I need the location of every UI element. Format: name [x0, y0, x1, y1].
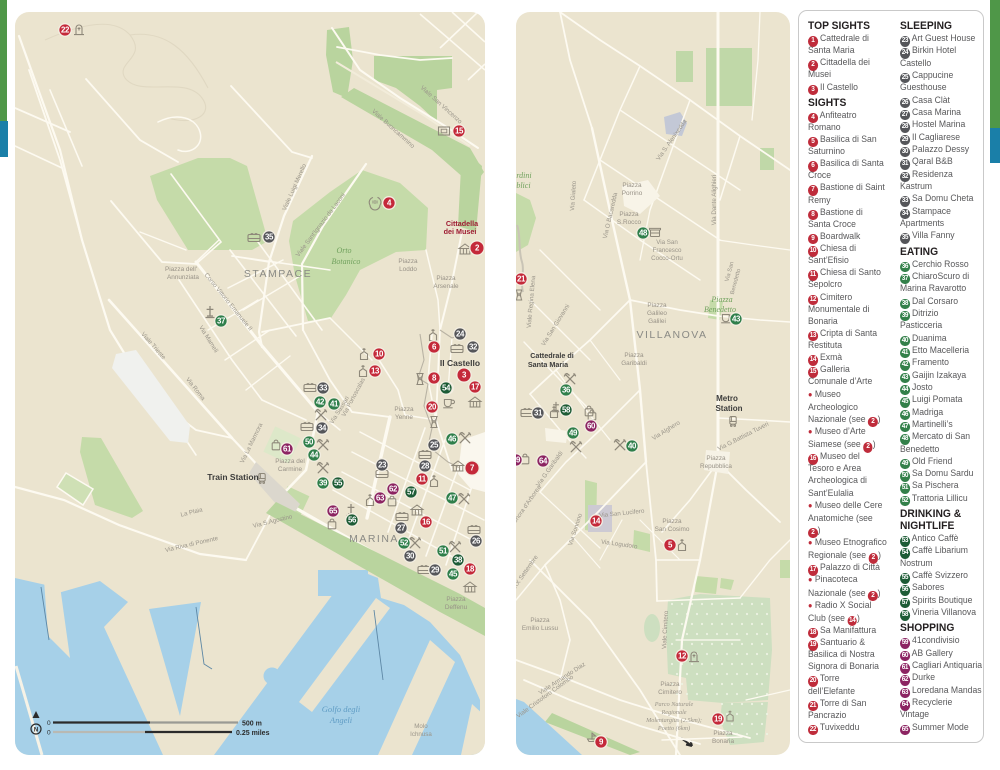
svg-text:San Cosimo: San Cosimo: [655, 526, 690, 533]
svg-text:Bonaria: Bonaria: [712, 738, 734, 745]
svg-text:40: 40: [628, 442, 637, 451]
svg-text:Regionale: Regionale: [660, 709, 686, 716]
svg-text:44: 44: [310, 451, 319, 460]
svg-text:60: 60: [587, 422, 596, 431]
svg-text:Repubblica: Repubblica: [700, 463, 732, 470]
svg-text:52: 52: [400, 539, 409, 548]
svg-text:39: 39: [319, 479, 328, 488]
svg-text:Yenne: Yenne: [395, 414, 413, 421]
svg-text:Piazza: Piazza: [622, 182, 642, 189]
svg-text:Francesco: Francesco: [653, 247, 682, 254]
svg-text:Piazza: Piazza: [662, 518, 682, 525]
svg-text:19: 19: [714, 715, 723, 724]
svg-text:MARINA: MARINA: [349, 533, 399, 545]
svg-text:Piazza del: Piazza del: [275, 458, 305, 465]
svg-text:Via San: Via San: [656, 239, 678, 246]
svg-text:Benedetto: Benedetto: [704, 305, 736, 314]
svg-text:Orto: Orto: [336, 246, 351, 255]
svg-text:56: 56: [348, 516, 357, 525]
svg-text:0.25 miles: 0.25 miles: [236, 730, 270, 737]
svg-text:Angeli: Angeli: [329, 715, 353, 725]
svg-text:43: 43: [732, 315, 741, 324]
svg-text:61: 61: [283, 445, 292, 454]
svg-text:Annunziata: Annunziata: [167, 274, 199, 281]
svg-text:58: 58: [562, 406, 571, 415]
svg-text:34: 34: [318, 424, 327, 433]
svg-text:28: 28: [421, 462, 430, 471]
svg-text:Il Castello: Il Castello: [440, 358, 480, 368]
svg-text:VILLANOVA: VILLANOVA: [636, 329, 707, 341]
svg-text:Molentargius (2.5km);: Molentargius (2.5km);: [645, 717, 702, 724]
svg-text:Station: Station: [715, 404, 742, 413]
svg-text:55: 55: [334, 479, 343, 488]
svg-text:51: 51: [439, 547, 448, 556]
svg-text:23: 23: [378, 461, 387, 470]
svg-text:Porrino: Porrino: [622, 190, 643, 197]
svg-text:Deffenu: Deffenu: [445, 604, 468, 611]
svg-text:Piazza: Piazza: [530, 617, 550, 624]
svg-text:37: 37: [217, 317, 226, 326]
svg-text:57: 57: [407, 488, 416, 497]
svg-text:22: 22: [61, 26, 70, 35]
svg-text:Train Station: Train Station: [207, 472, 258, 482]
svg-text:18: 18: [466, 565, 475, 574]
svg-text:20: 20: [428, 403, 437, 412]
svg-text:14: 14: [592, 517, 601, 526]
svg-text:47: 47: [448, 494, 457, 503]
svg-text:dei Musei: dei Musei: [444, 227, 477, 236]
svg-text:Loddo: Loddo: [399, 266, 417, 273]
svg-text:0: 0: [47, 720, 51, 727]
svg-text:38: 38: [454, 556, 463, 565]
svg-text:54: 54: [442, 384, 451, 393]
svg-text:0: 0: [47, 730, 51, 737]
svg-text:12: 12: [678, 652, 687, 661]
svg-text:N: N: [34, 728, 38, 734]
svg-text:63: 63: [376, 494, 385, 503]
svg-text:48: 48: [639, 229, 648, 238]
svg-text:26: 26: [472, 537, 481, 546]
svg-text:Cimitero: Cimitero: [658, 689, 682, 696]
svg-text:25: 25: [430, 441, 439, 450]
svg-text:31: 31: [534, 409, 543, 418]
svg-text:Piazza dell': Piazza dell': [165, 266, 197, 273]
svg-text:Piazza: Piazza: [446, 596, 466, 603]
svg-text:Via Dante Alighieri: Via Dante Alighieri: [711, 175, 718, 225]
svg-text:13: 13: [371, 367, 380, 376]
svg-text:500 m: 500 m: [242, 721, 262, 728]
svg-text:Golfo degli: Golfo degli: [322, 704, 361, 714]
svg-text:Giardini: Giardini: [516, 171, 532, 180]
svg-text:64: 64: [539, 457, 548, 466]
svg-text:Garibaldi: Garibaldi: [621, 360, 647, 367]
svg-text:Piazza: Piazza: [398, 258, 418, 265]
svg-text:Carmine: Carmine: [278, 466, 303, 473]
svg-text:Piazza: Piazza: [436, 275, 456, 282]
svg-text:17: 17: [471, 383, 480, 392]
svg-text:30: 30: [406, 552, 415, 561]
svg-text:Metro: Metro: [716, 394, 738, 403]
svg-text:35: 35: [265, 233, 274, 242]
svg-text:24: 24: [456, 330, 465, 339]
svg-text:10: 10: [375, 350, 384, 359]
svg-text:Piazza: Piazza: [713, 730, 733, 737]
svg-text:Botanico: Botanico: [332, 257, 361, 266]
svg-text:46: 46: [448, 435, 457, 444]
svg-text:Piazza: Piazza: [394, 406, 414, 413]
svg-text:Piazza: Piazza: [710, 295, 732, 304]
svg-text:15: 15: [455, 127, 464, 136]
svg-text:50: 50: [305, 438, 314, 447]
svg-text:41: 41: [330, 400, 339, 409]
svg-text:42: 42: [316, 398, 325, 407]
svg-text:Cocco-Ortu: Cocco-Ortu: [651, 255, 683, 262]
svg-text:Piazza: Piazza: [619, 211, 639, 218]
svg-text:21: 21: [517, 275, 526, 284]
svg-text:Pubblici: Pubblici: [516, 181, 531, 190]
svg-text:45: 45: [449, 570, 458, 579]
svg-text:27: 27: [397, 524, 406, 533]
svg-text:11: 11: [418, 475, 427, 484]
svg-text:65: 65: [329, 507, 338, 516]
svg-text:Parco Naturale: Parco Naturale: [654, 701, 694, 708]
svg-text:Emilio Lussu: Emilio Lussu: [522, 625, 559, 632]
svg-text:Piazza: Piazza: [660, 681, 680, 688]
svg-text:Santa Maria: Santa Maria: [528, 360, 569, 369]
svg-text:32: 32: [469, 343, 478, 352]
svg-text:Galilei: Galilei: [648, 318, 666, 325]
svg-text:S.Rocco: S.Rocco: [617, 219, 642, 226]
svg-text:29: 29: [431, 566, 440, 575]
svg-text:Piazza: Piazza: [624, 352, 644, 359]
svg-text:Poetto (6km): Poetto (6km): [657, 725, 690, 732]
svg-text:Ichnusa: Ichnusa: [410, 731, 432, 738]
svg-text:Galileo: Galileo: [647, 310, 667, 317]
svg-text:Molo: Molo: [414, 723, 428, 730]
svg-text:62: 62: [389, 485, 398, 494]
svg-text:Piazza: Piazza: [706, 455, 726, 462]
svg-text:STAMPACE: STAMPACE: [244, 268, 312, 280]
svg-text:36: 36: [562, 386, 571, 395]
svg-text:Arsenale: Arsenale: [433, 283, 459, 290]
svg-text:49: 49: [569, 429, 578, 438]
svg-text:16: 16: [422, 518, 431, 527]
svg-text:Cattedrale di: Cattedrale di: [530, 351, 574, 360]
svg-text:Piazza: Piazza: [647, 302, 667, 309]
svg-text:33: 33: [319, 384, 328, 393]
